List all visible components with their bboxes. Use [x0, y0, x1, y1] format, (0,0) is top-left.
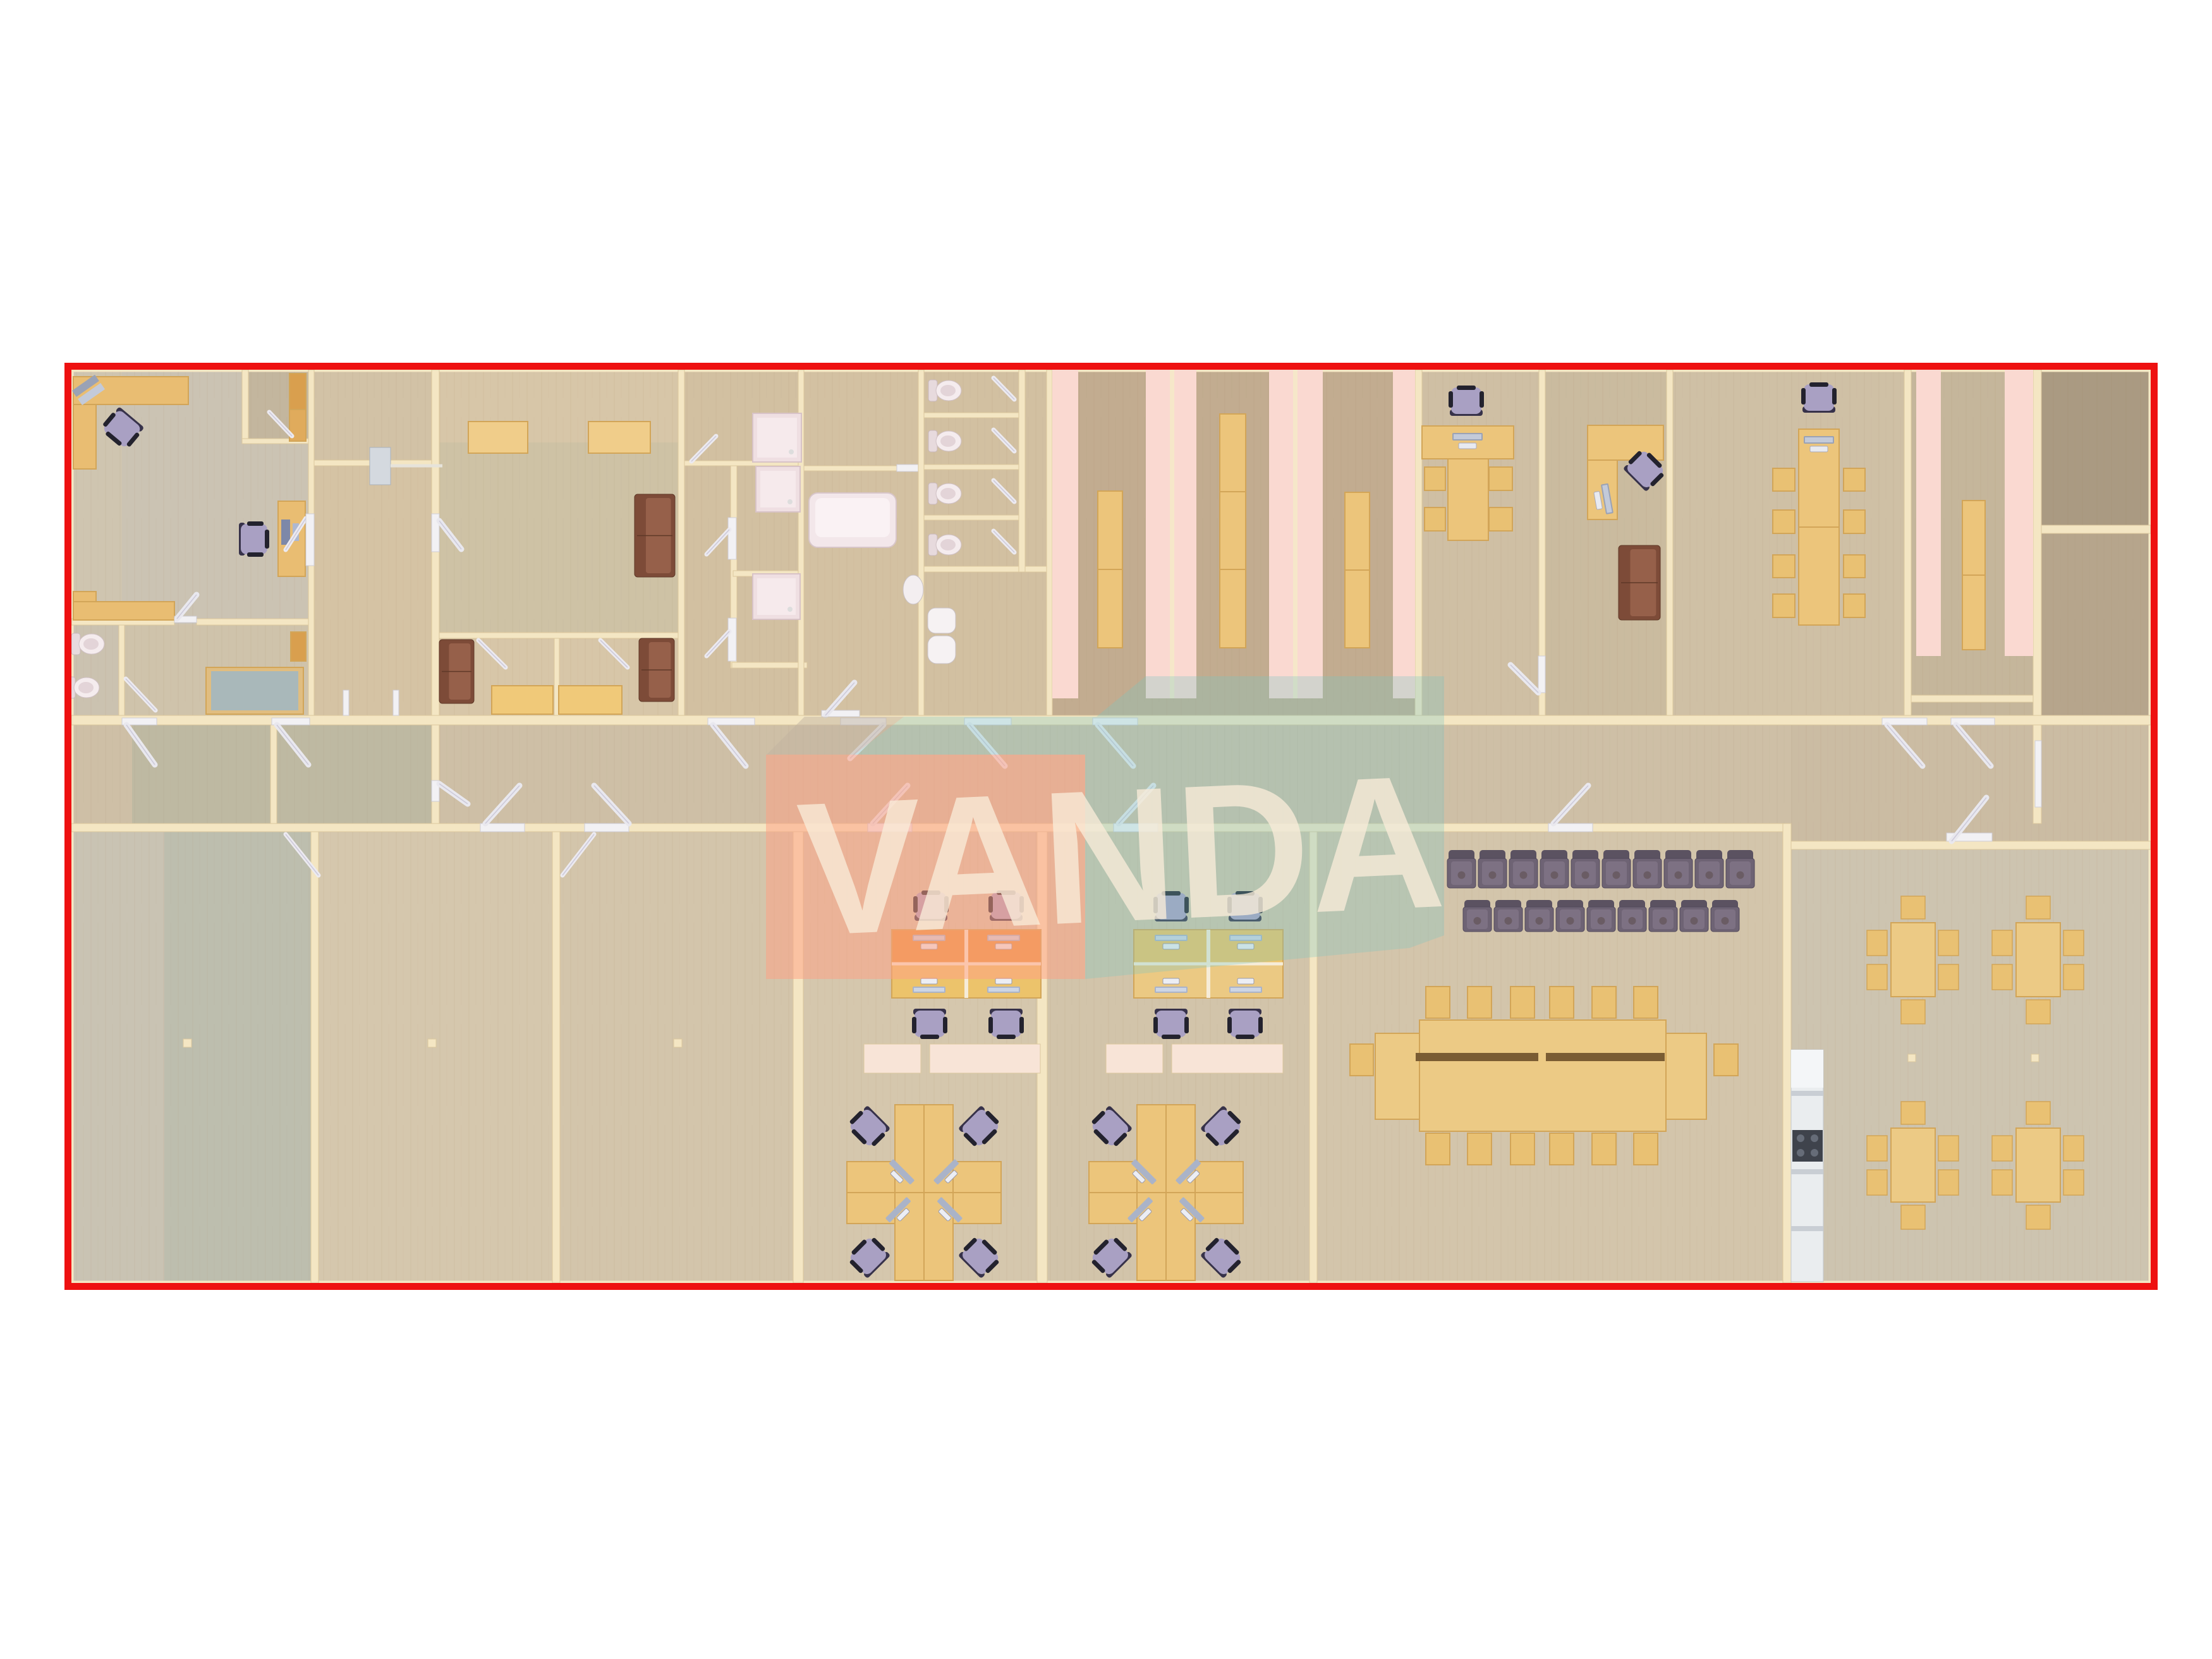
svg-text:VANDA: VANDA [794, 734, 1449, 976]
